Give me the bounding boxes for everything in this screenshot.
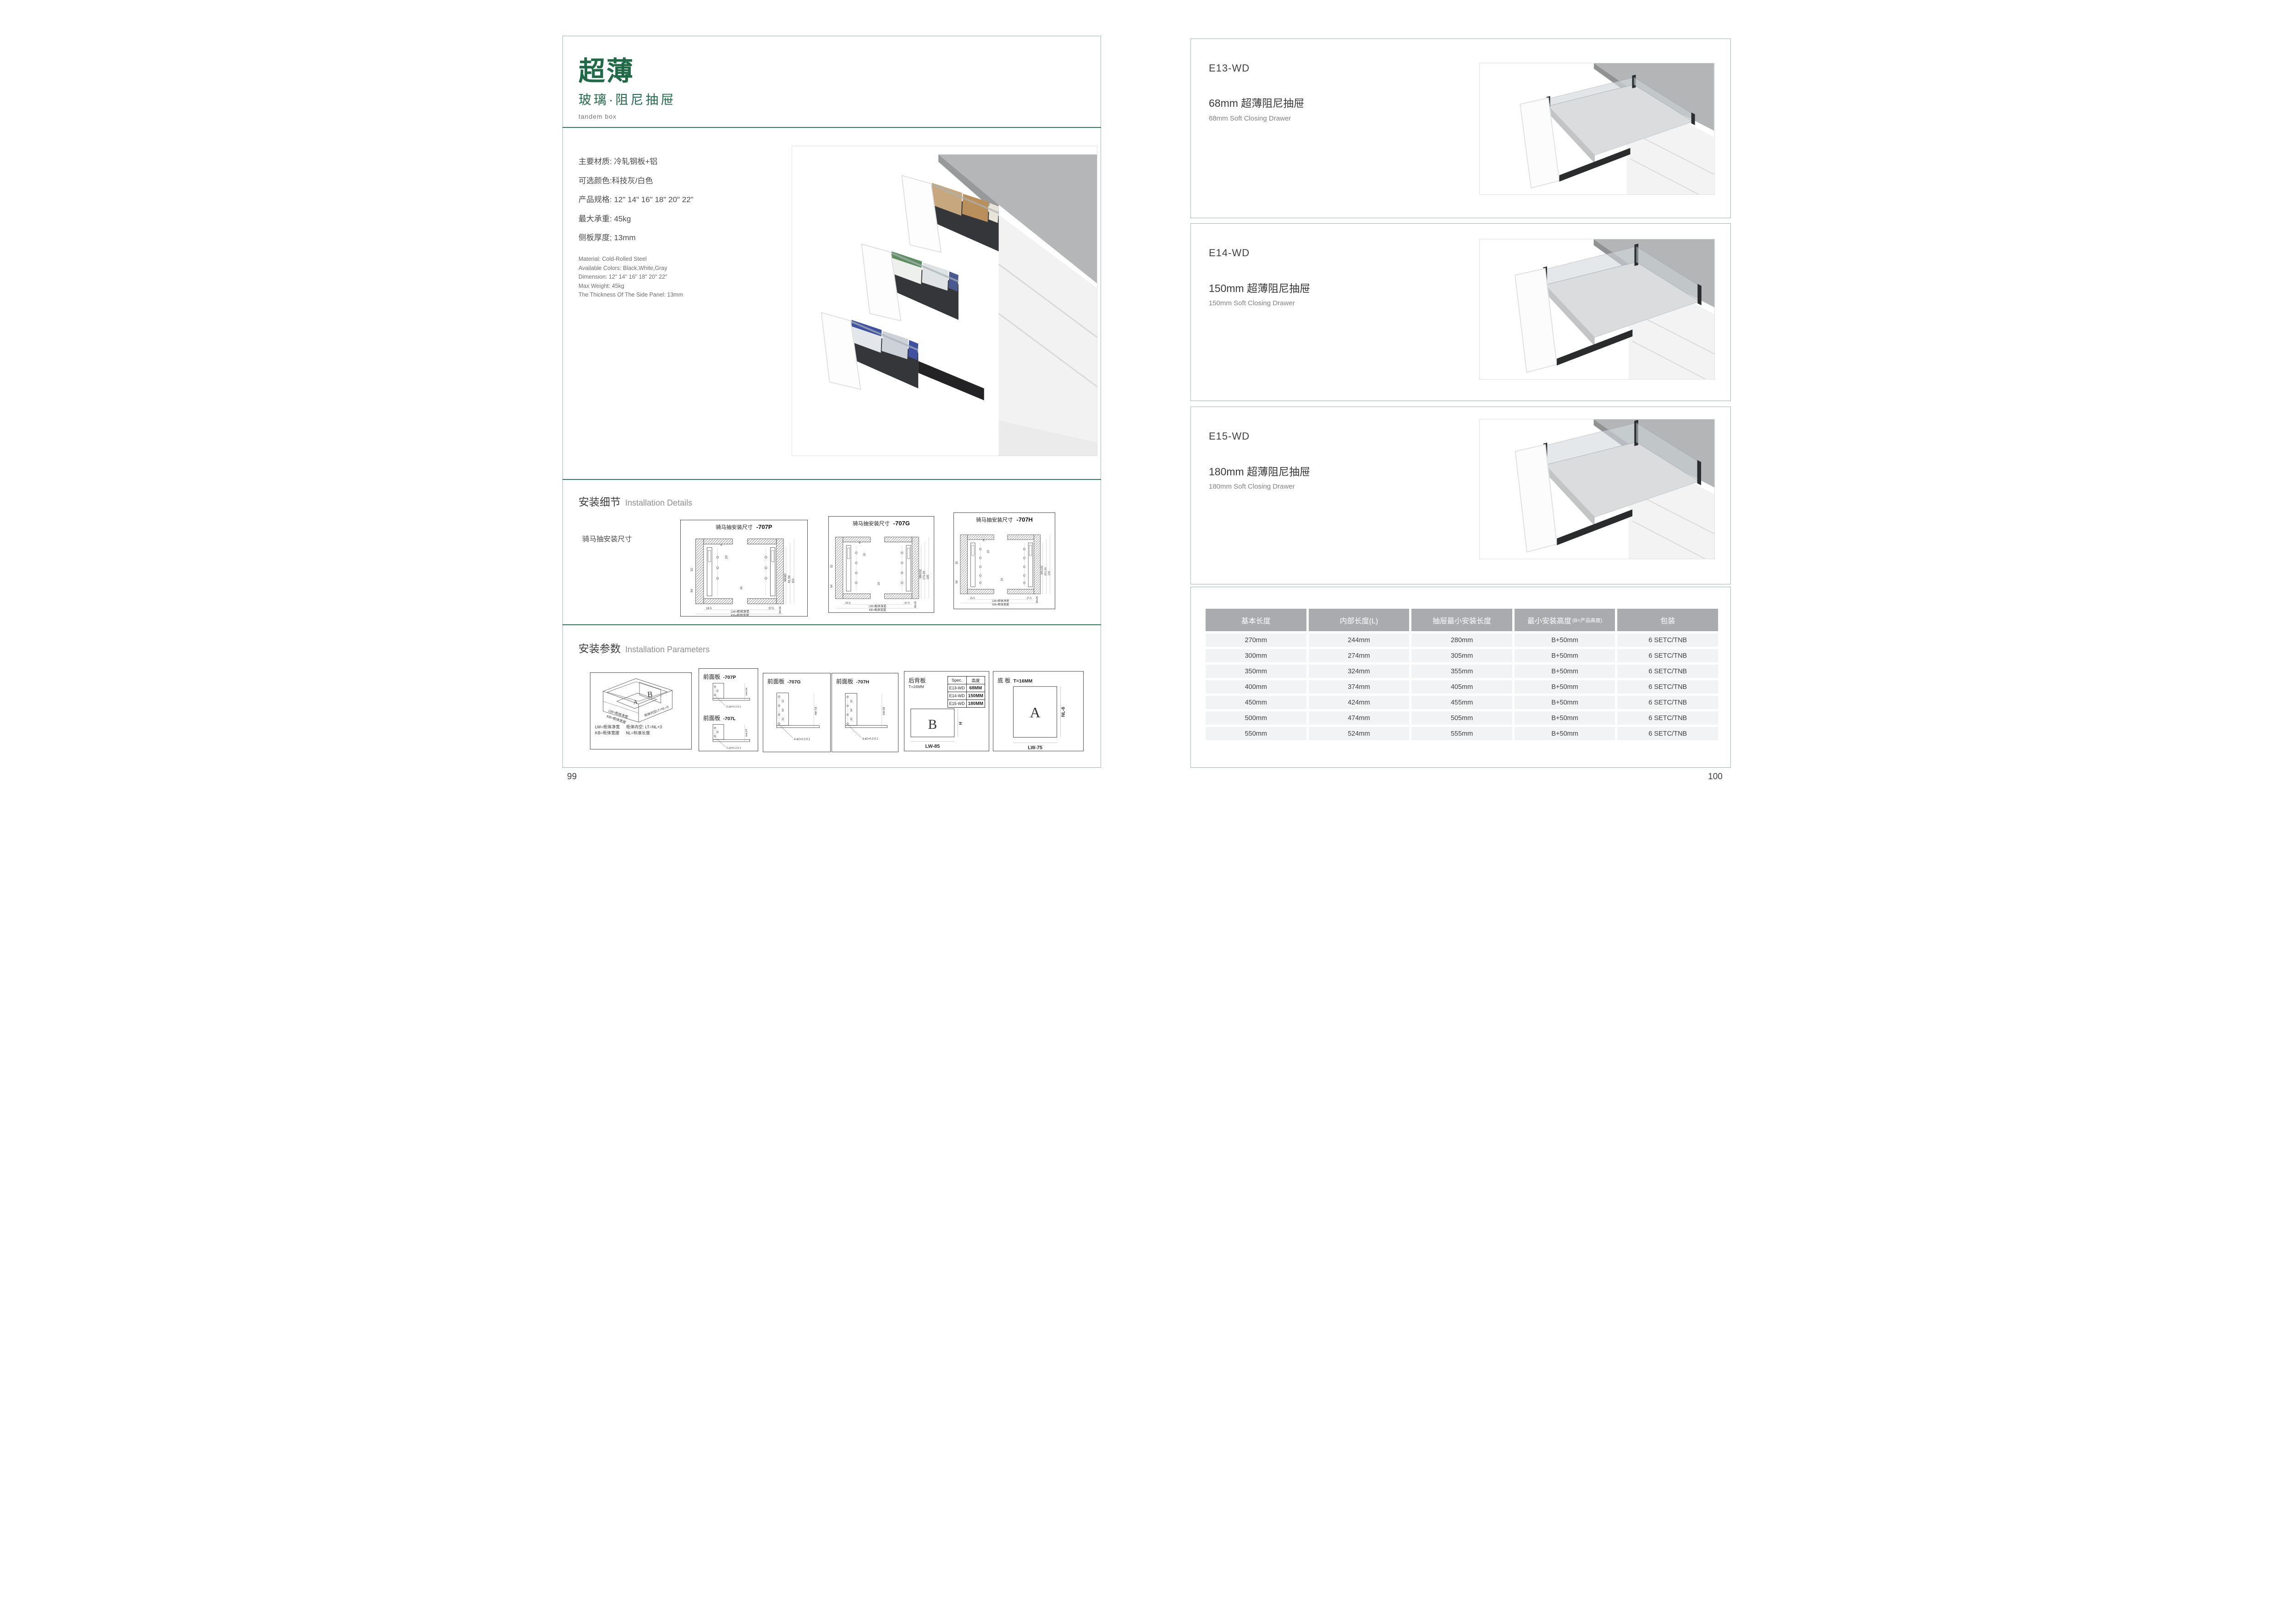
page-title: 超薄: [579, 50, 634, 88]
tech-drawing-title: 骑马抽安装尺寸 -707P: [681, 520, 807, 534]
spec-line: Max Weight: 45kg: [579, 282, 683, 291]
svg-text:LW=柜体净宽: LW=柜体净宽: [731, 609, 749, 613]
table-header-cell: 内部长度(L): [1309, 609, 1410, 631]
svg-text:KB=柜体宽度: KB=柜体宽度: [731, 613, 749, 617]
table-cell: B+50mm: [1515, 727, 1615, 740]
tech-drawing-label: 骑马抽安装尺寸: [853, 520, 890, 527]
svg-text:32: 32: [830, 564, 833, 568]
svg-text:B: B: [928, 717, 937, 732]
table-cell: 300mm: [1206, 649, 1306, 662]
spec-line: 产品规格: 12" 14" 16" 18" 20" 22": [579, 190, 694, 209]
legend-item: LW=柜体净宽: [595, 725, 620, 729]
svg-text:Min36: Min36: [915, 601, 917, 608]
spec-line: Dimension: 12" 14" 16" 18" 20" 22": [579, 273, 683, 282]
drawer-render: [1480, 419, 1714, 559]
front-panel-diagram: 32 min 54 2-ø2+0.2-0.1: [699, 681, 758, 710]
svg-text:37.5: 37.5: [768, 607, 774, 610]
svg-text:NL-6: NL-6: [1061, 707, 1066, 717]
bottom-panel-title: 底 板 T=16MM: [993, 672, 1083, 684]
svg-text:LW-75: LW-75: [1028, 745, 1042, 750]
iso-cabinet-box: B A LW=柜体净宽 KB=柜体宽度 柜体内空LT=NL+3 LW=柜体净宽柜…: [590, 672, 692, 749]
spec-height: 68MM: [966, 684, 985, 692]
svg-text:min 54: min 54: [745, 729, 748, 737]
table-cell: B+50mm: [1515, 649, 1615, 662]
table-cell: 474mm: [1309, 711, 1410, 725]
legend-item: KB=柜体宽度: [595, 731, 619, 735]
table-header-cell: 基本长度: [1206, 609, 1306, 631]
table-cell: 500mm: [1206, 711, 1306, 725]
svg-text:A: A: [1030, 705, 1041, 721]
page-tagline: tandem box: [579, 113, 617, 120]
svg-text:9: 9: [720, 544, 722, 547]
svg-text:32: 32: [690, 568, 694, 572]
svg-text:Min36: Min36: [1036, 596, 1039, 603]
svg-text:min 54: min 54: [745, 688, 748, 695]
svg-text:16.5: 16.5: [970, 597, 975, 600]
svg-text:32: 32: [955, 561, 959, 564]
drawer-cabinet-photo: [792, 146, 1097, 456]
product-name-en: 150mm Soft Closing Drawer: [1209, 299, 1295, 307]
product-name-en: 68mm Soft Closing Drawer: [1209, 115, 1291, 122]
table-cell: B+50mm: [1515, 696, 1615, 709]
product-render-e13: [1479, 63, 1715, 195]
svg-text:37.5: 37.5: [1026, 597, 1031, 600]
svg-text:195: 195: [926, 574, 930, 579]
svg-text:16: 16: [877, 582, 881, 585]
spec-line: Available Colors: Black,White,Gray: [579, 264, 683, 273]
front-panel-code: -707P: [723, 675, 736, 680]
back-panel-box: 后背板 T=16MM Spec. 高度 E13-WD 68MM E14-WD 1…: [904, 671, 989, 751]
install-details-subtitle: 骑马抽安装尺寸: [582, 534, 632, 544]
svg-text:2-ø2+0.2-0.1: 2-ø2+0.2-0.1: [726, 706, 741, 709]
front-panel-diagram: 32 64 32 min 54 4-ø2+0.2-0.1: [763, 685, 829, 749]
table-cell: 550mm: [1206, 727, 1306, 740]
front-panel-code: -707H: [856, 679, 870, 685]
product-name-cn: 68mm 超薄阻尼抽屉: [1209, 94, 1304, 110]
drawer-render: [1480, 63, 1714, 194]
svg-text:B: B: [647, 690, 653, 699]
tech-drawing-code: -707H: [1017, 516, 1033, 523]
spec-model: E13-WD: [948, 684, 966, 692]
svg-text:LW=柜体净宽: LW=柜体净宽: [869, 604, 887, 608]
legend-item: 柜体内空: LT=NL+3: [626, 725, 662, 729]
table-cell: 270mm: [1206, 633, 1306, 647]
table-cell: 350mm: [1206, 665, 1306, 678]
svg-text:4-ø2+0.2-0.1: 4-ø2+0.2-0.1: [862, 738, 878, 741]
catalog-spread: 超薄 玻璃·阻尼抽屉 tandem box 主要材质: 冷轧钢板+铝 可选颜色:…: [523, 0, 1769, 812]
install-details-title-en: Installation Details: [625, 498, 692, 507]
svg-text:32: 32: [716, 731, 719, 733]
svg-text:H: H: [959, 722, 963, 725]
svg-text:32: 32: [782, 718, 784, 721]
product-code: E13-WD: [1209, 62, 1250, 74]
svg-text:54: 54: [955, 580, 959, 584]
back-panel-spec-table: Spec. 高度 E13-WD 68MM E14-WD 150MM E15-WD…: [948, 676, 985, 708]
spec-col-header: Spec.: [948, 677, 966, 684]
spec-line: 侧板厚度; 13mm: [579, 228, 694, 248]
front-panel-label: 前面板: [703, 713, 721, 722]
table-cell: 555mm: [1411, 727, 1512, 740]
table-cell: 6 SETC/TNB: [1617, 711, 1718, 725]
tech-drawing-707H: 骑马抽安装尺寸 -707H: [953, 512, 1055, 609]
section-divider: [562, 479, 1101, 480]
front-panel-707P-707L-box: 前面板 -707P 32 min 54 2-ø2+0.2-0.1 前面板 -70…: [699, 668, 758, 751]
product-name-cn: 180mm 超薄阻尼抽屉: [1209, 463, 1310, 479]
tech-drawing-code: -707P: [756, 523, 772, 530]
dimensions-table: 基本长度 内部长度(L) 抽屉最小安装长度 最小安装高度(B=产品高度) 包装 …: [1206, 609, 1718, 740]
bottom-panel-note: T=16MM: [1013, 678, 1032, 684]
front-panel-code: -707L: [723, 716, 736, 721]
svg-text:Min36: Min36: [779, 606, 782, 614]
table-cell: 450mm: [1206, 696, 1306, 709]
svg-text:min 54: min 54: [814, 706, 817, 715]
table-cell: 455mm: [1411, 696, 1512, 709]
front-panel-title: 前面板 -707P: [699, 669, 758, 681]
svg-text:20: 20: [987, 550, 990, 553]
cross-section-diagram: 9 20 32 54 16 16.5 37.5 Min36 Min162 171…: [829, 531, 933, 613]
table-cell: 244mm: [1309, 633, 1410, 647]
tech-drawing-label: 骑马抽安装尺寸: [716, 523, 753, 531]
product-code: E15-WD: [1209, 430, 1250, 442]
svg-text:32: 32: [850, 718, 853, 721]
svg-text:16: 16: [1000, 578, 1003, 581]
spec-model: E14-WD: [948, 692, 966, 700]
spec-line: The Thickness Of The Side Panel: 13mm: [579, 291, 683, 300]
front-panel-label: 前面板: [767, 677, 785, 685]
product-render-e15: [1479, 419, 1715, 559]
spec-line: Material: Cold-Rolled Steel: [579, 255, 683, 264]
table-cell: 6 SETC/TNB: [1617, 633, 1718, 647]
product-name-cn: 150mm 超薄阻尼抽屉: [1209, 280, 1310, 295]
svg-text:KB=柜体宽度: KB=柜体宽度: [869, 607, 886, 611]
back-panel-label: 后背板: [909, 676, 926, 684]
install-details-title: 安装细节Installation Details: [579, 493, 692, 509]
svg-text:20: 20: [863, 553, 866, 556]
front-panel-title: 前面板 -707L: [699, 710, 758, 722]
table-cell: B+50mm: [1515, 633, 1615, 647]
table-cell: 505mm: [1411, 711, 1512, 725]
back-panel-diagram: B H LW-85: [904, 706, 989, 750]
cross-section-diagram: 9 20 32 54 16 16.5 37.5 Min36 Min192 201…: [954, 527, 1054, 609]
table-cell: 274mm: [1309, 649, 1410, 662]
table-cell: 374mm: [1309, 680, 1410, 694]
table-cell: B+50mm: [1515, 711, 1615, 725]
table-cell: 324mm: [1309, 665, 1410, 678]
product-name-en: 180mm Soft Closing Drawer: [1209, 483, 1295, 490]
tech-drawing-code: -707G: [893, 520, 910, 527]
install-details-title-cn: 安装细节: [579, 496, 621, 508]
svg-text:225: 225: [1048, 571, 1051, 576]
tech-drawing-label: 骑马抽安装尺寸: [976, 516, 1013, 523]
install-params-title-cn: 安装参数: [579, 643, 621, 655]
tech-drawing-707G: 骑马抽安装尺寸 -707G: [828, 516, 934, 613]
svg-text:KB=柜体宽度: KB=柜体宽度: [992, 603, 1009, 606]
spec-height: 150MM: [966, 692, 985, 700]
spec-line: 可选颜色:科技灰/白色: [579, 171, 694, 191]
cross-section-diagram: 9 20 32 54 16 16.5 37.5 Min36 Min82 91.5…: [681, 534, 806, 617]
spec-col-header: 高度: [966, 677, 985, 684]
table-cell: 524mm: [1309, 727, 1410, 740]
table-cell: 305mm: [1411, 649, 1512, 662]
table-header-cell: 抽屉最小安装长度: [1411, 609, 1512, 631]
bottom-panel-box: 底 板 T=16MM A NL-6 LW-75: [993, 671, 1084, 751]
svg-text:64: 64: [782, 708, 784, 711]
front-panel-label: 前面板: [703, 672, 721, 681]
svg-text:64: 64: [850, 708, 853, 711]
page-subtitle: 玻璃·阻尼抽屉: [579, 90, 676, 108]
table-cell: 424mm: [1309, 696, 1410, 709]
svg-text:54: 54: [830, 584, 833, 588]
header-divider: [562, 127, 1101, 128]
svg-text:Min162: Min162: [919, 569, 922, 578]
table-cell: 6 SETC/TNB: [1617, 680, 1718, 694]
svg-text:16.5: 16.5: [845, 602, 851, 605]
front-panel-code: -707G: [788, 679, 801, 685]
table-header-cell: 包装: [1617, 609, 1718, 631]
svg-text:20: 20: [725, 556, 728, 559]
svg-text:54: 54: [690, 589, 694, 593]
install-params-title: 安装参数Installation Parameters: [579, 640, 710, 655]
table-cell: 6 SETC/TNB: [1617, 727, 1718, 740]
table-cell: B+50mm: [1515, 665, 1615, 678]
svg-text:2-ø2+0.2-0.1: 2-ø2+0.2-0.1: [726, 747, 741, 750]
front-panel-707G-box: 前面板 -707G 32 64 32 min 54 4-ø2+0.2-0.1: [763, 673, 831, 752]
section-divider: [562, 624, 1101, 625]
install-params-title-en: Installation Parameters: [625, 645, 710, 654]
svg-text:32: 32: [716, 689, 719, 692]
iso-legend: LW=柜体净宽柜体内空: LT=NL+3 KB=柜体宽度NL=标准长度: [590, 724, 691, 736]
iso-cabinet-diagram: B A LW=柜体净宽 KB=柜体宽度 柜体内空LT=NL+3: [590, 673, 691, 724]
table-cell: 400mm: [1206, 680, 1306, 694]
drawer-render: [1480, 239, 1714, 379]
table-cell: 280mm: [1411, 633, 1512, 647]
page-number-right: 100: [1708, 772, 1723, 782]
front-panel-title: 前面板 -707G: [763, 673, 830, 685]
tech-drawing-707P: 骑马抽安装尺寸 -707P 9: [680, 520, 808, 617]
specs-cn: 主要材质: 冷轧钢板+铝 可选颜色:科技灰/白色 产品规格: 12" 14" 1…: [579, 152, 694, 248]
product-code: E14-WD: [1209, 247, 1250, 259]
front-panel-label: 前面板: [836, 677, 854, 685]
front-panel-title: 前面板 -707H: [832, 673, 898, 685]
front-panel-diagram: 32 64 32 min 54 4-ø2+0.2-0.1: [832, 685, 897, 749]
svg-text:91.50: 91.50: [788, 575, 791, 583]
table-cell: 6 SETC/TNB: [1617, 649, 1718, 662]
legend-item: NL=标准长度: [626, 731, 650, 735]
svg-text:16: 16: [740, 586, 743, 590]
svg-text:201.50: 201.50: [1044, 567, 1047, 576]
bottom-panel-diagram: A NL-6 LW-75: [993, 684, 1083, 751]
table-cell: 6 SETC/TNB: [1617, 696, 1718, 709]
svg-text:LW=柜体净宽: LW=柜体净宽: [992, 599, 1009, 603]
svg-text:113: 113: [792, 578, 795, 584]
table-cell: 6 SETC/TNB: [1617, 665, 1718, 678]
spec-line: 主要材质: 冷轧钢板+铝: [579, 152, 694, 171]
svg-text:37.5: 37.5: [904, 602, 910, 605]
svg-text:LW-85: LW-85: [925, 744, 940, 749]
svg-text:Min82: Min82: [784, 573, 787, 582]
svg-text:柜体内空LT=NL+3: 柜体内空LT=NL+3: [644, 705, 669, 718]
svg-text:16.5: 16.5: [706, 607, 712, 610]
front-panel-707H-box: 前面板 -707H 32 64 32 min 54 4-ø2+0.2-0.1: [832, 673, 898, 752]
svg-text:9: 9: [859, 541, 860, 545]
table-header-cell: 最小安装高度(B=产品高度): [1515, 609, 1615, 631]
svg-text:A: A: [633, 699, 638, 705]
svg-text:32: 32: [850, 700, 853, 703]
product-photo-frame: [792, 146, 1097, 456]
specs-en: Material: Cold-Rolled Steel Available Co…: [579, 255, 683, 300]
spec-line: 最大承重: 45kg: [579, 209, 694, 229]
svg-text:min 54: min 54: [883, 707, 886, 716]
tech-drawing-title: 骑马抽安装尺寸 -707H: [954, 513, 1055, 527]
svg-text:32: 32: [782, 699, 784, 703]
page-number-left: 99: [567, 772, 577, 782]
table-cell: 355mm: [1411, 665, 1512, 678]
product-render-e14: [1479, 239, 1715, 380]
tech-drawing-title: 骑马抽安装尺寸 -707G: [829, 517, 934, 531]
table-cell: B+50mm: [1515, 680, 1615, 694]
table-cell: 405mm: [1411, 680, 1512, 694]
bottom-panel-label: 底 板: [997, 676, 1010, 684]
svg-text:4-ø2+0.2-0.1: 4-ø2+0.2-0.1: [794, 738, 810, 741]
svg-text:Min192: Min192: [1041, 566, 1044, 574]
front-panel-diagram: 32 min 54 2-ø2+0.2-0.1: [699, 722, 758, 751]
svg-text:171.50: 171.50: [923, 571, 926, 579]
